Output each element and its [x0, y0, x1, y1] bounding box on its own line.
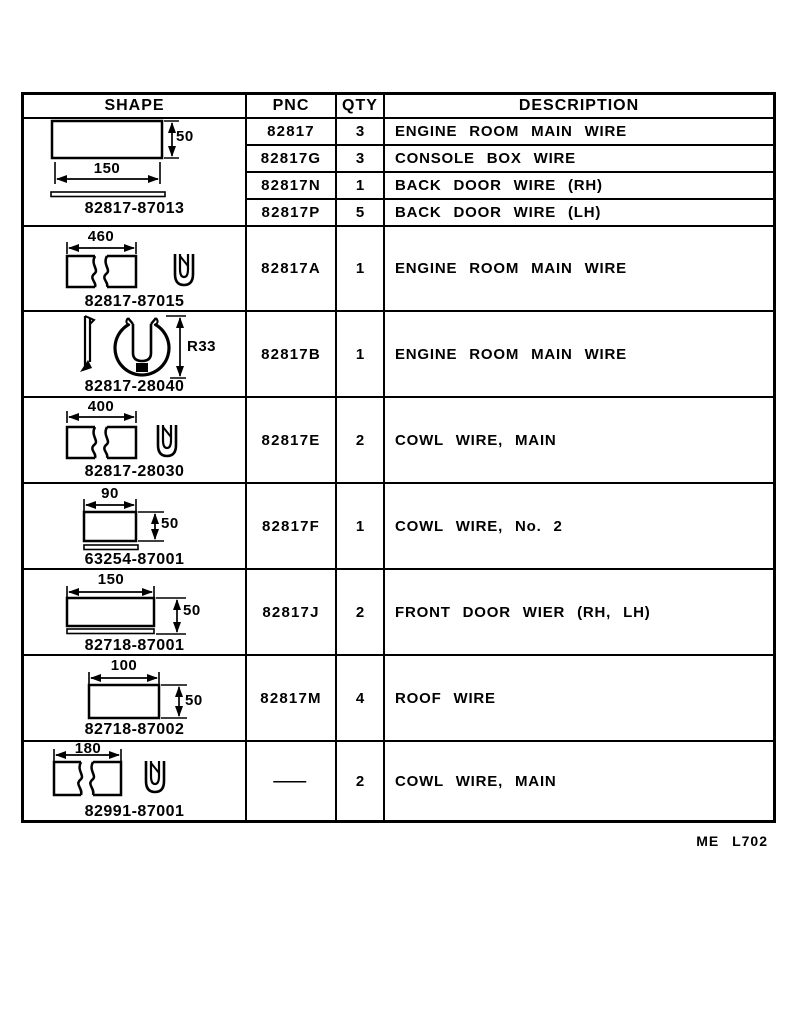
- part-outline: [67, 427, 95, 458]
- shape-drawing-82718-87001: 150 50 82718-87001: [24, 570, 247, 654]
- part-outline: [93, 762, 121, 795]
- pnc-value: 82817A: [247, 227, 337, 310]
- qty-value: 3: [337, 146, 385, 171]
- pnc-value: 82817F: [247, 484, 337, 568]
- pnc-value: 82817P: [247, 200, 337, 225]
- shape-drawing-82991-87001: 180 82991-87001: [24, 742, 247, 820]
- description-value: COWL WIRE, No. 2: [385, 484, 773, 568]
- description-value: ENGINE ROOM MAIN WIRE: [385, 312, 773, 396]
- height-dim-label: 50: [183, 602, 201, 619]
- part-number-label: 82817-28040: [24, 378, 245, 396]
- u-clip-glyph: [146, 761, 164, 792]
- header-pnc: PNC: [247, 95, 337, 117]
- shape-drawing-82718-87002: 100 50 82718-87002: [24, 656, 247, 740]
- qty-value: 2: [337, 742, 385, 820]
- description-value: COWL WIRE, MAIN: [385, 742, 773, 820]
- harness-strip: [51, 192, 165, 197]
- break-squiggle: [92, 427, 96, 458]
- description-value: CONSOLE BOX WIRE: [385, 146, 773, 171]
- qty-value: 3: [337, 119, 385, 144]
- pnc-value: 82817M: [247, 656, 337, 740]
- width-dim-label: 150: [80, 571, 142, 588]
- page-code: ME L702: [696, 833, 768, 849]
- height-dim-label: 50: [176, 128, 194, 145]
- qty-value: 1: [337, 227, 385, 310]
- u-clip-glyph: [158, 425, 176, 456]
- qty-value: 1: [337, 173, 385, 198]
- break-squiggle: [78, 762, 82, 795]
- pnc-value: 82817: [247, 119, 337, 144]
- part-number-label: 82817-87013: [24, 200, 245, 218]
- length-dim-label: 460: [69, 228, 133, 245]
- pnc-value: 82817B: [247, 312, 337, 396]
- table-group-82718-87002: 100 50 82718-87002 82817M 4 ROOF WIRE: [24, 654, 773, 740]
- pnc-dash: —: [273, 773, 309, 790]
- table-row: 82817 3 ENGINE ROOM MAIN WIRE: [247, 119, 773, 144]
- qty-value: 1: [337, 312, 385, 396]
- shape-drawing-82817-87013: 50 150 82817-87013: [24, 119, 247, 225]
- table-group-82718-87001: 150 50 82718-87001 82817J 2 FRONT DOOR W…: [24, 568, 773, 654]
- table-header: SHAPE PNC QTY DESCRIPTION: [24, 95, 773, 117]
- length-dim-label: 180: [56, 740, 120, 757]
- description-value: ENGINE ROOM MAIN WIRE: [385, 227, 773, 310]
- shape-drawing-82817-28040: R33 82817-28040: [24, 312, 247, 396]
- table-group-82817-28040: R33 82817-28040 82817B 1 ENGINE ROOM MAI…: [24, 310, 773, 396]
- length-dim-label: 400: [69, 398, 133, 415]
- qty-value: 2: [337, 570, 385, 654]
- description-value: FRONT DOOR WIER (RH, LH): [385, 570, 773, 654]
- parts-catalog-page: SHAPE PNC QTY DESCRIPTION 50 150 82817-8…: [0, 0, 792, 1010]
- break-squiggle: [90, 762, 94, 795]
- break-squiggle: [92, 256, 96, 287]
- table-group-63254-87001: 90 50 63254-87001 82817F 1 COWL WIRE, No…: [24, 482, 773, 568]
- clip-side-view: [80, 316, 94, 372]
- description-value: ROOF WIRE: [385, 656, 773, 740]
- break-squiggle: [104, 256, 108, 287]
- header-description: DESCRIPTION: [385, 95, 773, 117]
- part-outline: [84, 512, 136, 541]
- harness-strip: [84, 545, 138, 550]
- width-dim-label: 90: [84, 485, 136, 502]
- parts-table: SHAPE PNC QTY DESCRIPTION 50 150 82817-8…: [21, 92, 776, 823]
- description-value: BACK DOOR WIRE (RH): [385, 173, 773, 198]
- description-value: COWL WIRE, MAIN: [385, 398, 773, 482]
- pnc-value: —: [247, 742, 337, 820]
- shape-drawing-82817-28030: 400 82817-28030: [24, 398, 247, 482]
- table-group-82817-87013: 50 150 82817-87013 82817 3 ENGINE ROOM M…: [24, 117, 773, 225]
- table-row: 82817N 1 BACK DOOR WIRE (RH): [247, 171, 773, 198]
- part-number-label: 63254-87001: [24, 551, 245, 569]
- table-group-82817-87015: 460 82817-87015 82817A 1 ENGINE ROOM MAI…: [24, 225, 773, 310]
- shape-drawing-82817-87015: 460 82817-87015: [24, 227, 247, 310]
- pnc-value: 82817N: [247, 173, 337, 198]
- height-dim-label: 50: [185, 692, 203, 709]
- table-group-82991-87001: 180 82991-87001 — 2 COWL WIRE, MAIN: [24, 740, 773, 820]
- part-outline: [52, 121, 162, 158]
- table-row: 82817G 3 CONSOLE BOX WIRE: [247, 144, 773, 171]
- part-number-label: 82817-28030: [24, 463, 245, 481]
- description-value: ENGINE ROOM MAIN WIRE: [385, 119, 773, 144]
- height-dim-label: 50: [161, 515, 179, 532]
- part-outline: [54, 762, 81, 795]
- part-outline: [89, 685, 159, 718]
- width-dim-label: 150: [79, 160, 135, 177]
- part-outline: [67, 598, 154, 626]
- clip-front-view: [115, 318, 169, 375]
- break-squiggle: [104, 427, 108, 458]
- harness-strip: [67, 629, 154, 634]
- table-row: 82817P 5 BACK DOOR WIRE (LH): [247, 198, 773, 225]
- u-clip-glyph: [175, 254, 193, 285]
- part-outline: [107, 427, 136, 458]
- pnc-value: 82817E: [247, 398, 337, 482]
- table-group-82817-28030: 400 82817-28030 82817E 2 COWL WIRE, MAIN: [24, 396, 773, 482]
- description-value: BACK DOOR WIRE (LH): [385, 200, 773, 225]
- header-qty: QTY: [337, 95, 385, 117]
- part-outline: [67, 256, 95, 287]
- qty-value: 1: [337, 484, 385, 568]
- radius-dim-label: R33: [187, 338, 216, 355]
- qty-value: 4: [337, 656, 385, 740]
- width-dim-label: 100: [89, 657, 159, 674]
- part-number-label: 82817-87015: [24, 293, 245, 311]
- shape-drawing-63254-87001: 90 50 63254-87001: [24, 484, 247, 568]
- qty-value: 5: [337, 200, 385, 225]
- part-number-label: 82718-87001: [24, 637, 245, 655]
- part-number-label: 82718-87002: [24, 721, 245, 739]
- pnc-value: 82817G: [247, 146, 337, 171]
- header-shape: SHAPE: [24, 95, 247, 117]
- qty-value: 2: [337, 398, 385, 482]
- part-number-label: 82991-87001: [24, 803, 245, 821]
- part-outline: [107, 256, 136, 287]
- pnc-value: 82817J: [247, 570, 337, 654]
